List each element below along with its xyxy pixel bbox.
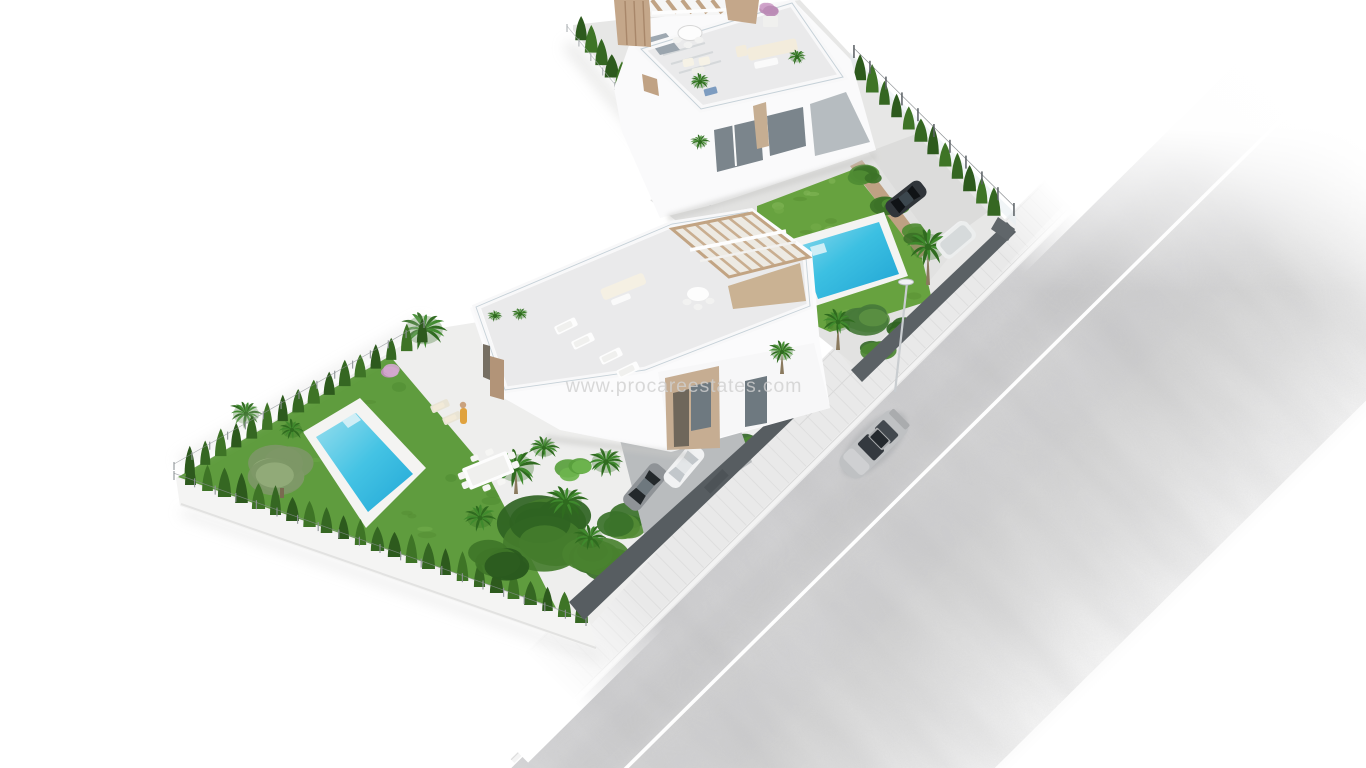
svg-text:www.procareestates.com: www.procareestates.com [565,375,802,397]
